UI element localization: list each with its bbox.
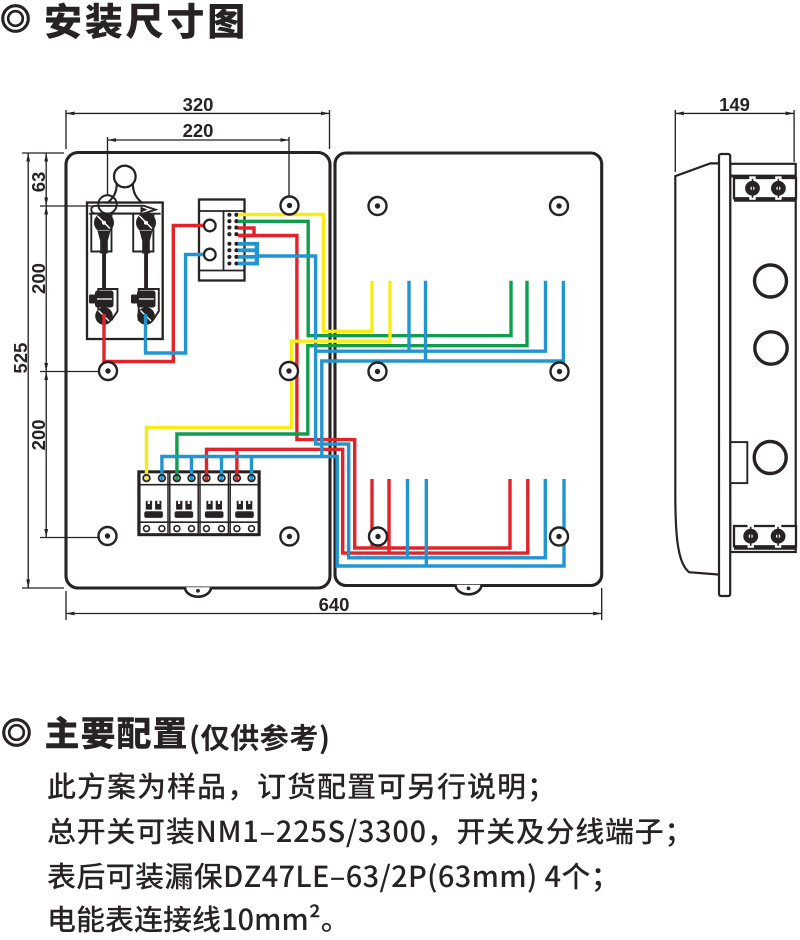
svg-text:200: 200	[28, 263, 49, 294]
svg-text:220: 220	[183, 120, 214, 141]
svg-text:640: 640	[319, 594, 350, 615]
svg-text:200: 200	[28, 419, 49, 450]
svg-text:525: 525	[10, 343, 31, 374]
svg-text:63: 63	[28, 172, 49, 193]
svg-text:149: 149	[719, 94, 750, 115]
svg-text:320: 320	[183, 94, 214, 115]
